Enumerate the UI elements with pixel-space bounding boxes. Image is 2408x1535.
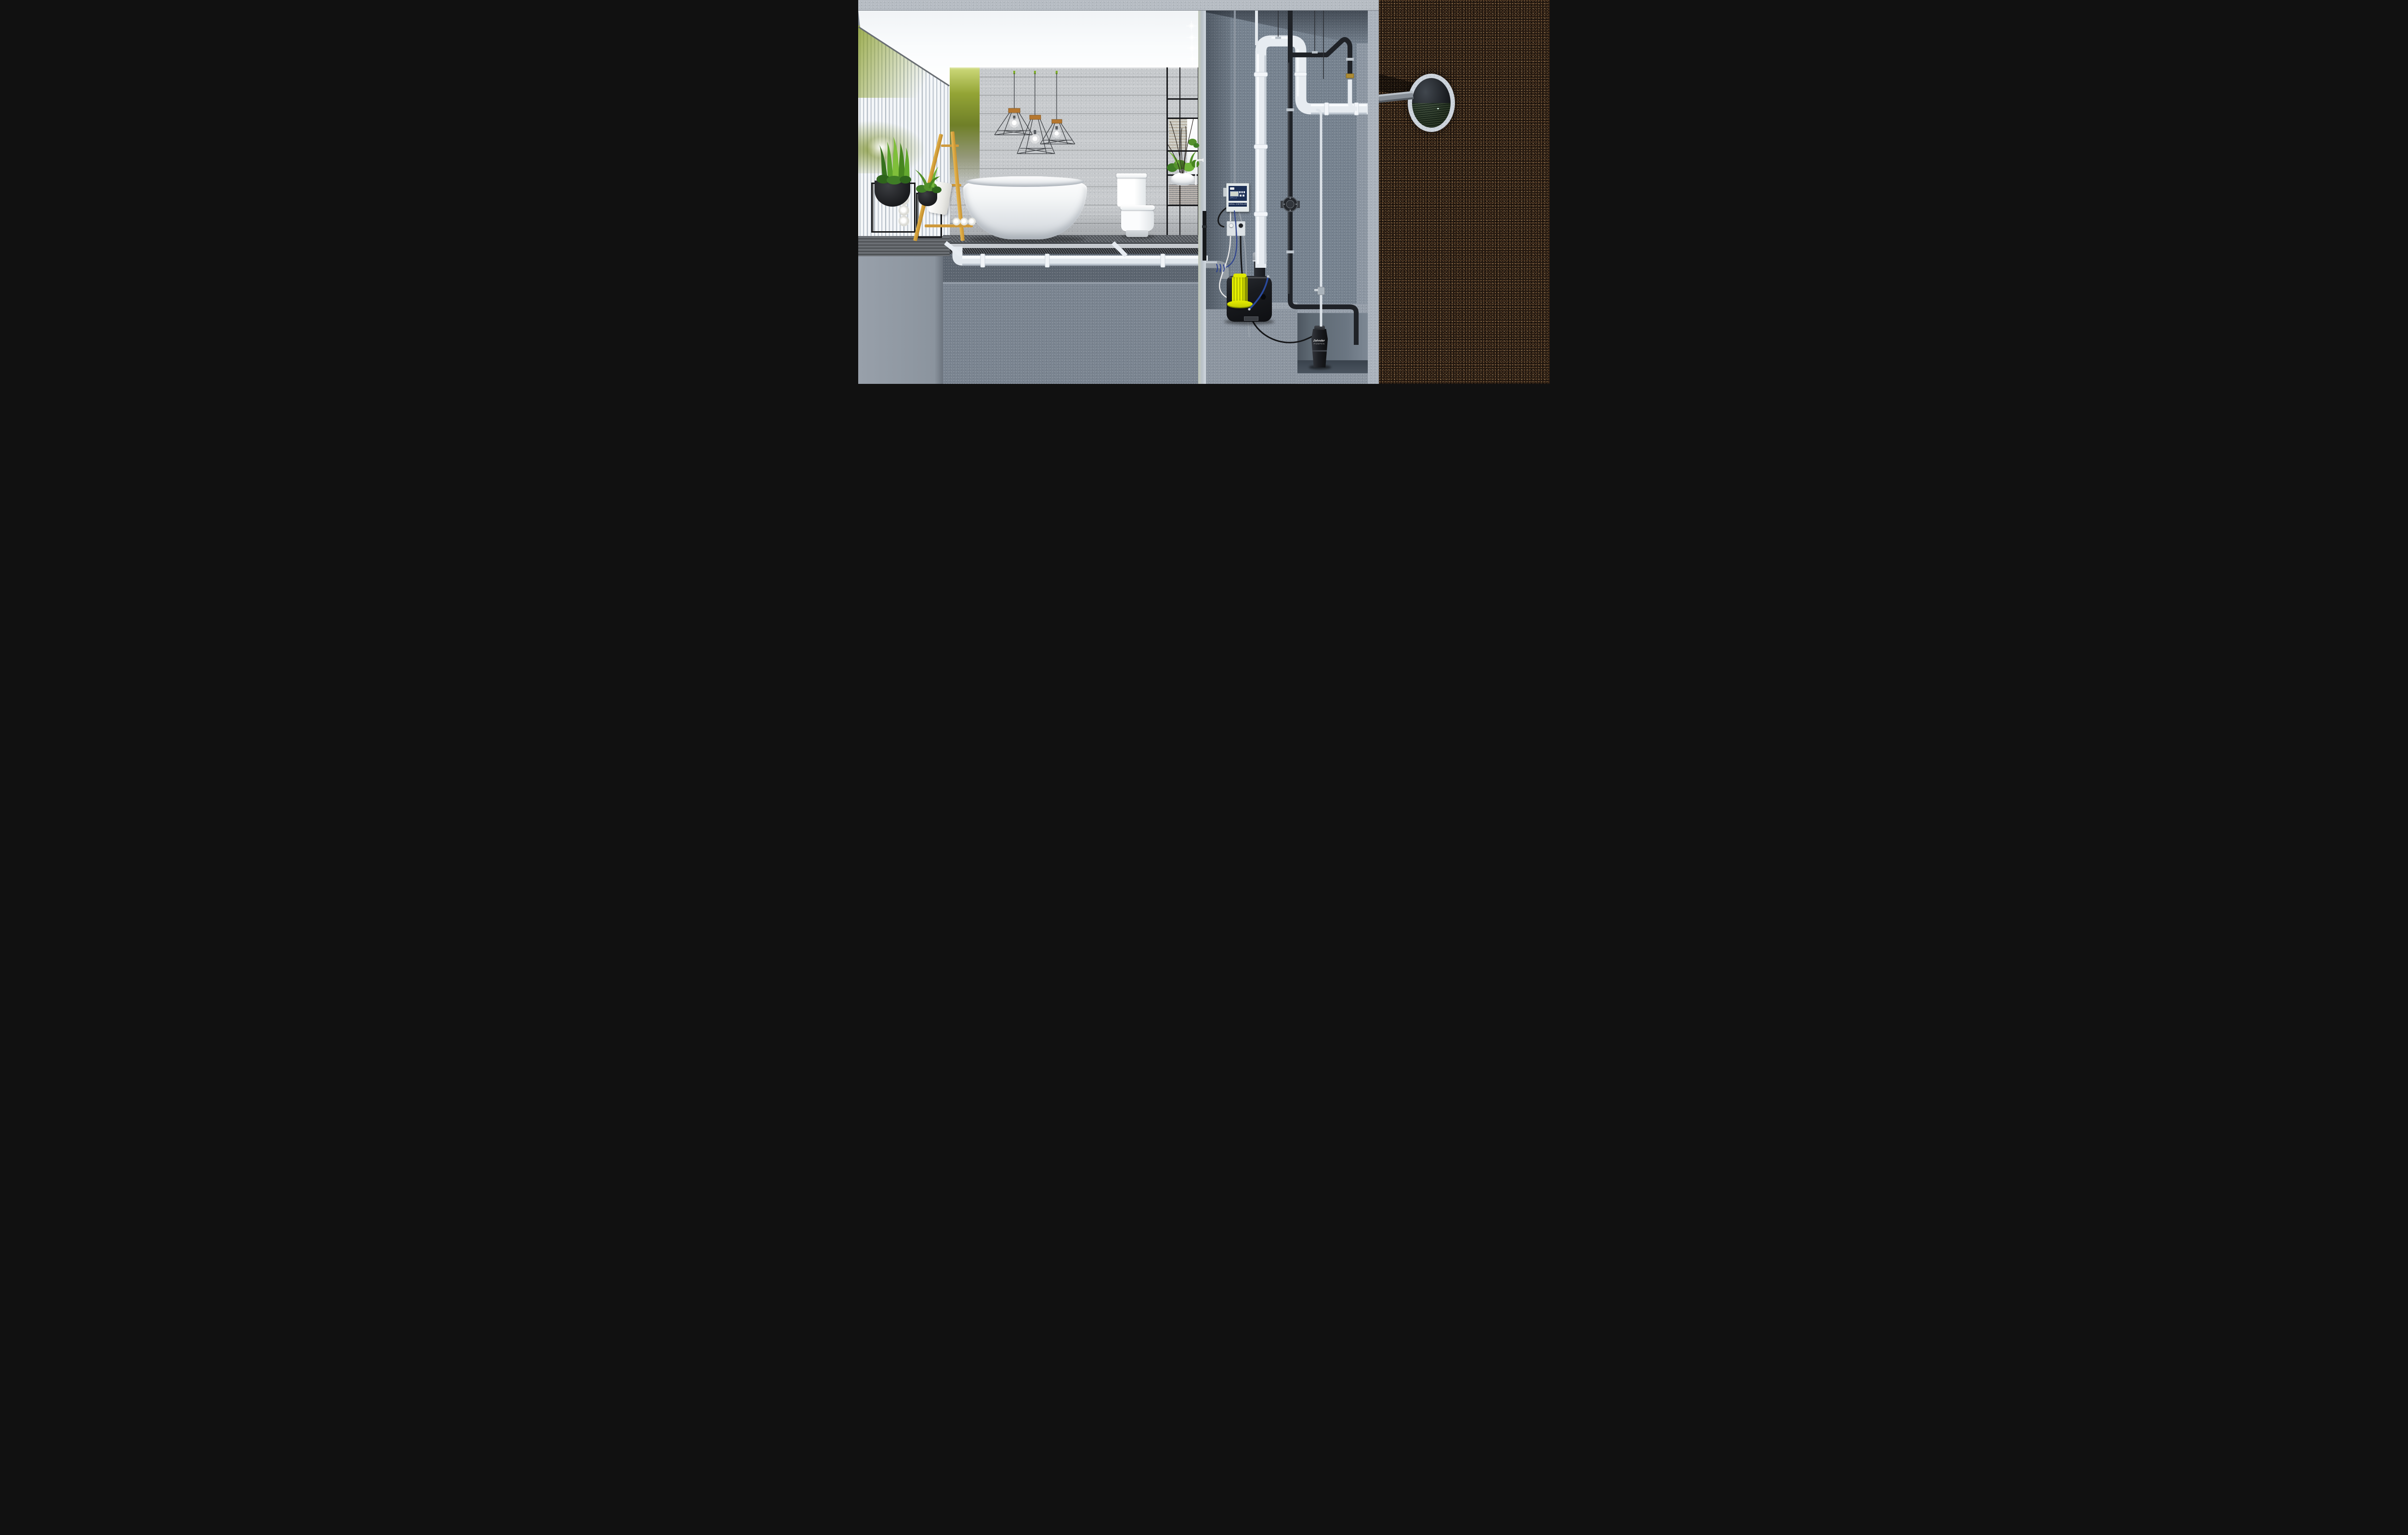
toilet-seat bbox=[1120, 205, 1155, 210]
tank-hex-plug bbox=[1260, 294, 1266, 300]
screed-layer bbox=[943, 244, 1198, 248]
pit-pump-brand-sub: PUMPEN bbox=[1314, 343, 1325, 345]
soil-cross-section bbox=[1378, 0, 1550, 384]
insulation-layer bbox=[943, 248, 1198, 254]
controller-face: ZPS 1.2 bbox=[1229, 186, 1247, 201]
toilet-base bbox=[1126, 230, 1148, 237]
pit-pump-body: Zehnder PUMPEN bbox=[1311, 329, 1328, 367]
foundation-concrete-lower bbox=[943, 284, 1198, 384]
frame-shelf-line bbox=[1166, 118, 1199, 119]
pit-pump-cap bbox=[1314, 326, 1325, 330]
black-plug bbox=[1239, 223, 1243, 228]
controller-logo bbox=[1230, 187, 1234, 190]
wood-deck bbox=[858, 236, 950, 256]
wall-outlet-left bbox=[1227, 221, 1236, 236]
cove-light-glow bbox=[950, 65, 1198, 69]
controller-lcd bbox=[1230, 191, 1239, 197]
pump-motor-yellow bbox=[1232, 276, 1248, 303]
pit-front-cut bbox=[1297, 373, 1368, 384]
white-plug bbox=[1230, 224, 1233, 227]
towel-roll bbox=[899, 216, 909, 226]
sewer-pipe-interior bbox=[1412, 78, 1451, 128]
tank-label-plate bbox=[1244, 316, 1258, 321]
level-controller-box: ZPS 1.2 NIVEAU- CONTROLLER bbox=[1226, 183, 1249, 212]
sun-glare bbox=[867, 136, 896, 158]
vanity-cabinet bbox=[1169, 184, 1199, 205]
toilet-tank bbox=[1117, 175, 1146, 207]
toilet-tank-lid bbox=[1116, 173, 1147, 178]
controller-conduit bbox=[1234, 10, 1236, 183]
toilet-bowl bbox=[1121, 209, 1154, 231]
vessel-sink bbox=[1171, 172, 1195, 185]
foreground-concrete-block bbox=[858, 256, 943, 384]
bathtub-rim bbox=[966, 176, 1084, 187]
vanity-frame bbox=[1166, 67, 1199, 235]
controller-title: NIVEAU- CONTROLLER bbox=[1229, 204, 1246, 206]
wall-outlet-right bbox=[1236, 221, 1245, 236]
partition-wall-cut-face bbox=[1198, 10, 1206, 384]
frame-shelf-line bbox=[1166, 205, 1199, 206]
motor-top-cap bbox=[1233, 274, 1246, 277]
pit-pump-band bbox=[1311, 350, 1328, 352]
top-slab-cut-face bbox=[858, 0, 1379, 11]
frame-shelf-line bbox=[1166, 98, 1199, 100]
pump-inlet-cap bbox=[1253, 252, 1267, 261]
motor-flange bbox=[1227, 301, 1253, 307]
rolled-towel-2 bbox=[960, 218, 968, 225]
pump-inlet-connector bbox=[1254, 260, 1265, 277]
towel-roll bbox=[899, 205, 909, 216]
controller-arrow-keys bbox=[1240, 195, 1244, 197]
right-wall-cut-face bbox=[1368, 0, 1379, 384]
rolled-towel-1 bbox=[953, 218, 960, 225]
rolled-towel-3 bbox=[968, 218, 976, 225]
ladder-rung-top bbox=[941, 144, 959, 147]
sewage-water bbox=[1412, 103, 1451, 128]
cutaway-scene: ZPS 1.2 NIVEAU- CONTROLLER Zehnder PUMPE… bbox=[858, 0, 1550, 384]
pit-floor bbox=[1297, 360, 1368, 373]
pump-inlet-band bbox=[1253, 260, 1267, 262]
water-sparkle bbox=[1437, 108, 1439, 109]
controller-conduit-stub bbox=[1223, 188, 1227, 197]
floor-seam bbox=[943, 243, 1198, 244]
controller-keys bbox=[1239, 191, 1245, 193]
controller-model: ZPS 1.2 bbox=[1230, 197, 1237, 199]
pit-back-ledge bbox=[1297, 304, 1368, 313]
foundation-concrete-upper bbox=[943, 254, 1198, 283]
planter-bowl-rim bbox=[875, 180, 910, 183]
frame-shelf-line bbox=[1166, 150, 1199, 152]
controller-banner: NIVEAU- CONTROLLER bbox=[1229, 203, 1247, 207]
